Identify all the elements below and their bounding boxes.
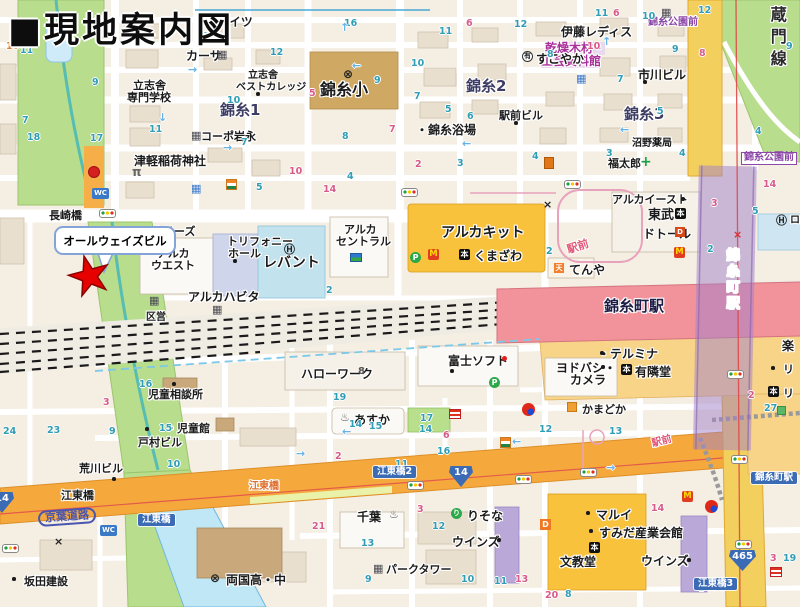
block-number: 8 — [547, 50, 554, 60]
oneway-arrow-icon: → — [296, 448, 305, 459]
label-wins-east: ウインズ — [641, 555, 689, 568]
block-number: 14 — [323, 185, 336, 195]
eight-icon: 8 — [358, 367, 365, 377]
block-number: 13 — [609, 427, 622, 437]
poi-dot — [586, 511, 590, 515]
block-number: 9 — [92, 78, 99, 88]
traffic-light-icon — [407, 481, 424, 490]
book-icon: 本 — [768, 386, 779, 397]
block-number: 6 — [613, 9, 620, 19]
map-label: リ — [783, 388, 794, 400]
bldg-icon: ▦ — [191, 130, 201, 141]
block-number: 12 — [539, 425, 552, 435]
label-tsugaru-inari-shrine: 津軽稲荷神社 — [134, 155, 206, 168]
pk-icon: P — [410, 252, 421, 263]
stripe-icon — [449, 409, 461, 419]
fam-icon — [350, 253, 362, 262]
mcd-icon: M — [682, 491, 693, 502]
book-icon: 本 — [621, 364, 632, 375]
map-label: 駅前ビル — [499, 110, 543, 122]
block-number: 10 — [642, 12, 655, 22]
map-label: 坂田建設 — [24, 576, 68, 588]
map-label: 児童相談所 — [148, 389, 203, 401]
label-wins-west: ウインズ — [452, 536, 500, 549]
page-title: ■現地案内図 — [8, 2, 234, 53]
redblue-icon — [522, 403, 535, 416]
block-number: 10 — [411, 59, 424, 69]
map-label: 沼野薬局 — [632, 139, 672, 150]
xred-icon: × — [733, 229, 742, 240]
label-kotobashi: 江東橋 — [61, 490, 94, 502]
smgreen-icon — [777, 406, 786, 415]
torii-icon: π — [132, 166, 142, 178]
label-fujisoft: 富士ソフト — [448, 355, 508, 368]
label-nagasaki-bridge: 長崎橋 — [49, 210, 82, 222]
map-label: 立志舎 — [248, 71, 278, 82]
book-icon: 本 — [675, 208, 686, 219]
block-number: 2 — [546, 247, 553, 257]
block-number: 17 — [90, 134, 103, 144]
label-kinshicho-station: 錦糸町駅 — [604, 299, 664, 315]
bluebldg-icon: ▦ — [576, 73, 586, 84]
block-number: 7 — [22, 116, 29, 126]
block-number: 12 — [514, 20, 527, 30]
block-number: 20 — [545, 591, 558, 601]
block-number: 7 — [241, 138, 248, 148]
school-icon: ⊗ — [210, 572, 220, 584]
dotor-icon: D — [675, 227, 685, 237]
poi-dot — [112, 477, 116, 481]
map-label: りそな — [467, 510, 503, 523]
label-ryogoku-school: 両国高・中 — [226, 574, 286, 587]
block-number: 11 — [149, 125, 162, 135]
map-label: 駅前 — [566, 238, 590, 256]
label-alca-habita: アルカハビタ — [188, 291, 260, 304]
map-label: ・児童館 — [166, 423, 210, 435]
poi-dot — [643, 80, 647, 84]
map-label: くまざわ — [474, 250, 522, 263]
road-sign: 江東橋3 — [694, 578, 737, 590]
poi-dot — [172, 382, 176, 386]
label-sumida-sangyo-kaikan: すみだ産業会館 — [599, 527, 683, 540]
label-termina: ・テルミナ — [598, 348, 658, 361]
block-number: 9 — [786, 42, 793, 52]
block-number: 2 — [335, 452, 342, 462]
block-number: 24 — [3, 427, 16, 437]
map-label: 駅前 — [651, 435, 673, 450]
block-number: 6 — [467, 112, 474, 122]
map-label: かまどか — [582, 404, 626, 416]
block-number: 4 — [679, 149, 686, 159]
block-number: 10 — [227, 96, 240, 106]
bldg-icon: ▦ — [212, 304, 222, 315]
block-number: 9 — [109, 427, 116, 437]
poi-dot — [589, 529, 593, 533]
orangebldg-icon — [544, 157, 554, 169]
block-number: 27 — [764, 404, 777, 414]
tenya-icon: 天 — [554, 263, 564, 273]
book-icon: 本 — [589, 542, 600, 553]
wc-icon: WC — [92, 188, 109, 199]
map-label: 区営 — [146, 313, 166, 324]
hotel-icon: Ⓗ — [776, 215, 787, 226]
label-marui: マルイ — [596, 509, 632, 522]
block-number: 2 — [748, 391, 755, 401]
block-number: 5 — [657, 107, 664, 117]
oneway-arrow-icon: ← — [342, 426, 351, 437]
seven-icon — [500, 437, 511, 448]
poi-dot — [450, 369, 454, 373]
map-label: 文教堂 — [560, 556, 596, 569]
resona-icon: り — [451, 508, 462, 519]
oneway-arrow-icon: ← — [352, 60, 361, 71]
poi-dot — [497, 538, 501, 542]
oneway-arrow-icon: → — [223, 142, 232, 153]
block-number: 3 — [103, 398, 110, 408]
block-number: 14 — [419, 425, 432, 435]
label-triphony-hall: ホール — [228, 248, 261, 260]
poi-dot — [771, 366, 775, 370]
map-label: パークタワー — [386, 564, 452, 576]
map-label: 戸村ビル — [138, 437, 182, 449]
label-arcakit: アルカキット — [441, 226, 524, 241]
block-number: 3 — [417, 505, 424, 515]
map-label: 千葉 — [357, 511, 381, 524]
block-number: 11 — [439, 27, 452, 37]
site-guide-map: ハイツカーサ立志舎ベストカレッジ立志舎専門学校錦糸1コーポ岩永津軽稲荷神社錦糸小… — [0, 0, 800, 607]
oneway-arrow-icon: ← — [462, 138, 471, 149]
block-number: 3 — [711, 199, 718, 209]
traffic-light-icon — [99, 209, 116, 218]
traffic-light-icon — [735, 540, 752, 549]
block-number: 6 — [466, 19, 473, 29]
block-number: 3 — [770, 554, 777, 564]
label-yodobashi-camera: カメラ — [570, 374, 606, 387]
oneway-arrow-icon: ← — [620, 124, 629, 135]
block-number: 5 — [309, 89, 316, 99]
block-number: 7 — [414, 92, 421, 102]
bldg-icon: ▦ — [149, 295, 159, 306]
redblue-icon — [705, 500, 718, 513]
kamado-icon — [567, 402, 577, 412]
block-number: 11 — [494, 577, 507, 587]
block-number: 2 — [707, 245, 714, 255]
label-alca-east: アルカイースト — [612, 194, 688, 206]
block-number: 21 — [312, 522, 325, 532]
block-number: 7 — [389, 125, 396, 135]
map-label: 東武 — [648, 209, 674, 223]
traffic-light-icon — [731, 455, 748, 464]
block-number: 2 — [415, 160, 422, 170]
bldg-icon: ▦ — [373, 563, 383, 574]
traffic-light-icon — [580, 468, 597, 477]
block-number: 7 — [617, 75, 624, 85]
label-kinshi-2: 錦糸2 — [466, 79, 506, 95]
block-number: 12 — [270, 48, 283, 58]
callout-label: オールウェイズビル — [63, 233, 166, 249]
onsen-icon: ♨ — [340, 412, 350, 423]
poi-dot — [601, 365, 605, 369]
poi-dot — [256, 92, 260, 96]
route-shield: 14 — [0, 492, 14, 513]
oneway-arrow-icon: ↑ — [602, 36, 611, 47]
poi-dot — [145, 427, 149, 431]
xblk-icon: × — [543, 199, 552, 210]
label-alca-west: ウエスト — [151, 260, 195, 272]
xblk-icon: × — [54, 536, 63, 547]
route-shield: 465 — [729, 550, 756, 571]
oneway-arrow-icon: → — [188, 64, 197, 75]
redcircle-icon — [88, 166, 100, 178]
block-number: 15 — [159, 424, 172, 434]
traffic-light-icon — [727, 370, 744, 379]
map-label: 楽 — [782, 340, 794, 353]
map-label: ロ — [790, 216, 800, 227]
poi-dot — [233, 259, 237, 263]
oneway-arrow-icon: ← — [512, 436, 521, 447]
map-label: 立志舎 — [133, 80, 166, 92]
block-number: 16 — [437, 447, 450, 457]
traffic-light-icon — [564, 180, 581, 189]
block-number: 10 — [461, 575, 474, 585]
block-number: 11 — [595, 9, 608, 19]
block-number: 5 — [445, 105, 452, 115]
label-alca-central: セントラル — [336, 236, 391, 248]
cross-icon: + — [640, 155, 652, 169]
traffic-light-icon — [401, 188, 418, 197]
block-number: 9 — [365, 575, 372, 585]
oneway-arrow-icon: → — [606, 462, 615, 473]
poi-dot — [687, 558, 691, 562]
map-label: 荒川ビル — [79, 463, 123, 475]
block-number: 4 — [532, 152, 539, 162]
block-number: 5 — [256, 183, 263, 193]
bluebldg-icon: ▦ — [191, 183, 201, 194]
poi-dot — [514, 121, 518, 125]
yuu-icon: 有 — [522, 51, 533, 62]
block-number: 3 — [606, 149, 613, 159]
block-number: 8 — [565, 590, 572, 600]
map-label: 錦糸公園前 — [741, 152, 797, 165]
poi-dot-red — [502, 356, 507, 361]
map-label: 専門学校 — [127, 92, 171, 104]
road-sign: 江東橋 — [138, 514, 175, 526]
label-levant: レバント — [263, 256, 320, 271]
mcd-icon: M — [428, 249, 439, 260]
road-sign: 錦糸町駅 — [751, 472, 797, 484]
bldg-icon: ▦ — [661, 7, 671, 18]
road-sign: 江東橋2 — [373, 466, 416, 478]
block-number: 4 — [755, 127, 762, 137]
label-kinshi-elementary: 錦糸小 — [320, 82, 368, 99]
block-number: 12 — [698, 6, 711, 16]
label-layer: ハイツカーサ立志舎ベストカレッジ立志舎専門学校錦糸1コーポ岩永津軽稲荷神社錦糸小… — [0, 0, 800, 607]
block-number: 3 — [457, 159, 464, 169]
block-number: 13 — [515, 575, 528, 585]
pk-icon: P — [489, 377, 500, 388]
block-number: 19 — [783, 554, 796, 564]
map-label: 福太郎 — [608, 158, 641, 170]
block-number: 2 — [326, 286, 333, 296]
block-number: 9 — [374, 76, 381, 86]
block-number: 8 — [342, 132, 349, 142]
block-number: 23 — [47, 426, 60, 436]
donki-icon: D — [540, 519, 551, 530]
hotel-icon: Ⓗ — [284, 244, 295, 255]
block-number: 13 — [361, 539, 374, 549]
oneway-arrow-icon: ↓ — [158, 112, 167, 123]
book-icon: 本 — [459, 249, 470, 260]
poi-dot — [600, 351, 604, 355]
block-number: 16 — [139, 380, 152, 390]
wc-icon: WC — [100, 525, 117, 536]
block-number: 19 — [333, 393, 346, 403]
block-number: 12 — [432, 522, 445, 532]
block-number: 6 — [443, 431, 450, 441]
block-number: 14 — [651, 504, 664, 514]
block-number: 18 — [27, 133, 40, 143]
route-shield: 14 — [449, 466, 473, 487]
map-label: ベストカレッジ — [236, 83, 306, 94]
block-number: 17 — [420, 414, 433, 424]
label-keiyo-road: 京葉道路 — [38, 507, 97, 527]
label-hanzomon-line: 蔵門線 — [768, 6, 785, 72]
map-label: 江東橋 — [249, 482, 279, 493]
map-label: 錦糸公園前 — [648, 18, 698, 29]
map-label: てんや — [569, 264, 605, 277]
mcd-icon: M — [674, 247, 685, 258]
block-number: 9 — [672, 45, 679, 55]
poi-dot — [12, 577, 16, 581]
map-label: アルカ — [344, 224, 377, 236]
map-label: 有隣堂 — [635, 366, 671, 379]
oneway-arrow-icon: ↑ — [340, 22, 349, 33]
onsen-icon: ♨ — [389, 509, 399, 520]
map-label: リ — [783, 364, 794, 376]
seven-icon — [226, 179, 237, 190]
block-number: 4 — [347, 172, 354, 182]
map-label: ・錦糸浴場 — [416, 124, 476, 137]
map-label: 伊藤レディス — [561, 26, 632, 39]
poi-dot — [681, 197, 685, 201]
block-number: 15 — [369, 422, 382, 432]
block-number: 14 — [763, 180, 776, 190]
map-label: すこやか — [536, 53, 584, 66]
block-number: 8 — [699, 49, 706, 59]
stripe-icon — [770, 567, 782, 577]
traffic-light-icon — [2, 544, 19, 553]
block-number: 10 — [587, 42, 600, 52]
traffic-light-icon — [515, 475, 532, 484]
label-kinshicho-subway-station: 錦糸町駅 — [724, 248, 738, 312]
block-number: 5 — [752, 207, 759, 217]
block-number: 10 — [289, 167, 302, 177]
block-number: 10 — [167, 460, 180, 470]
